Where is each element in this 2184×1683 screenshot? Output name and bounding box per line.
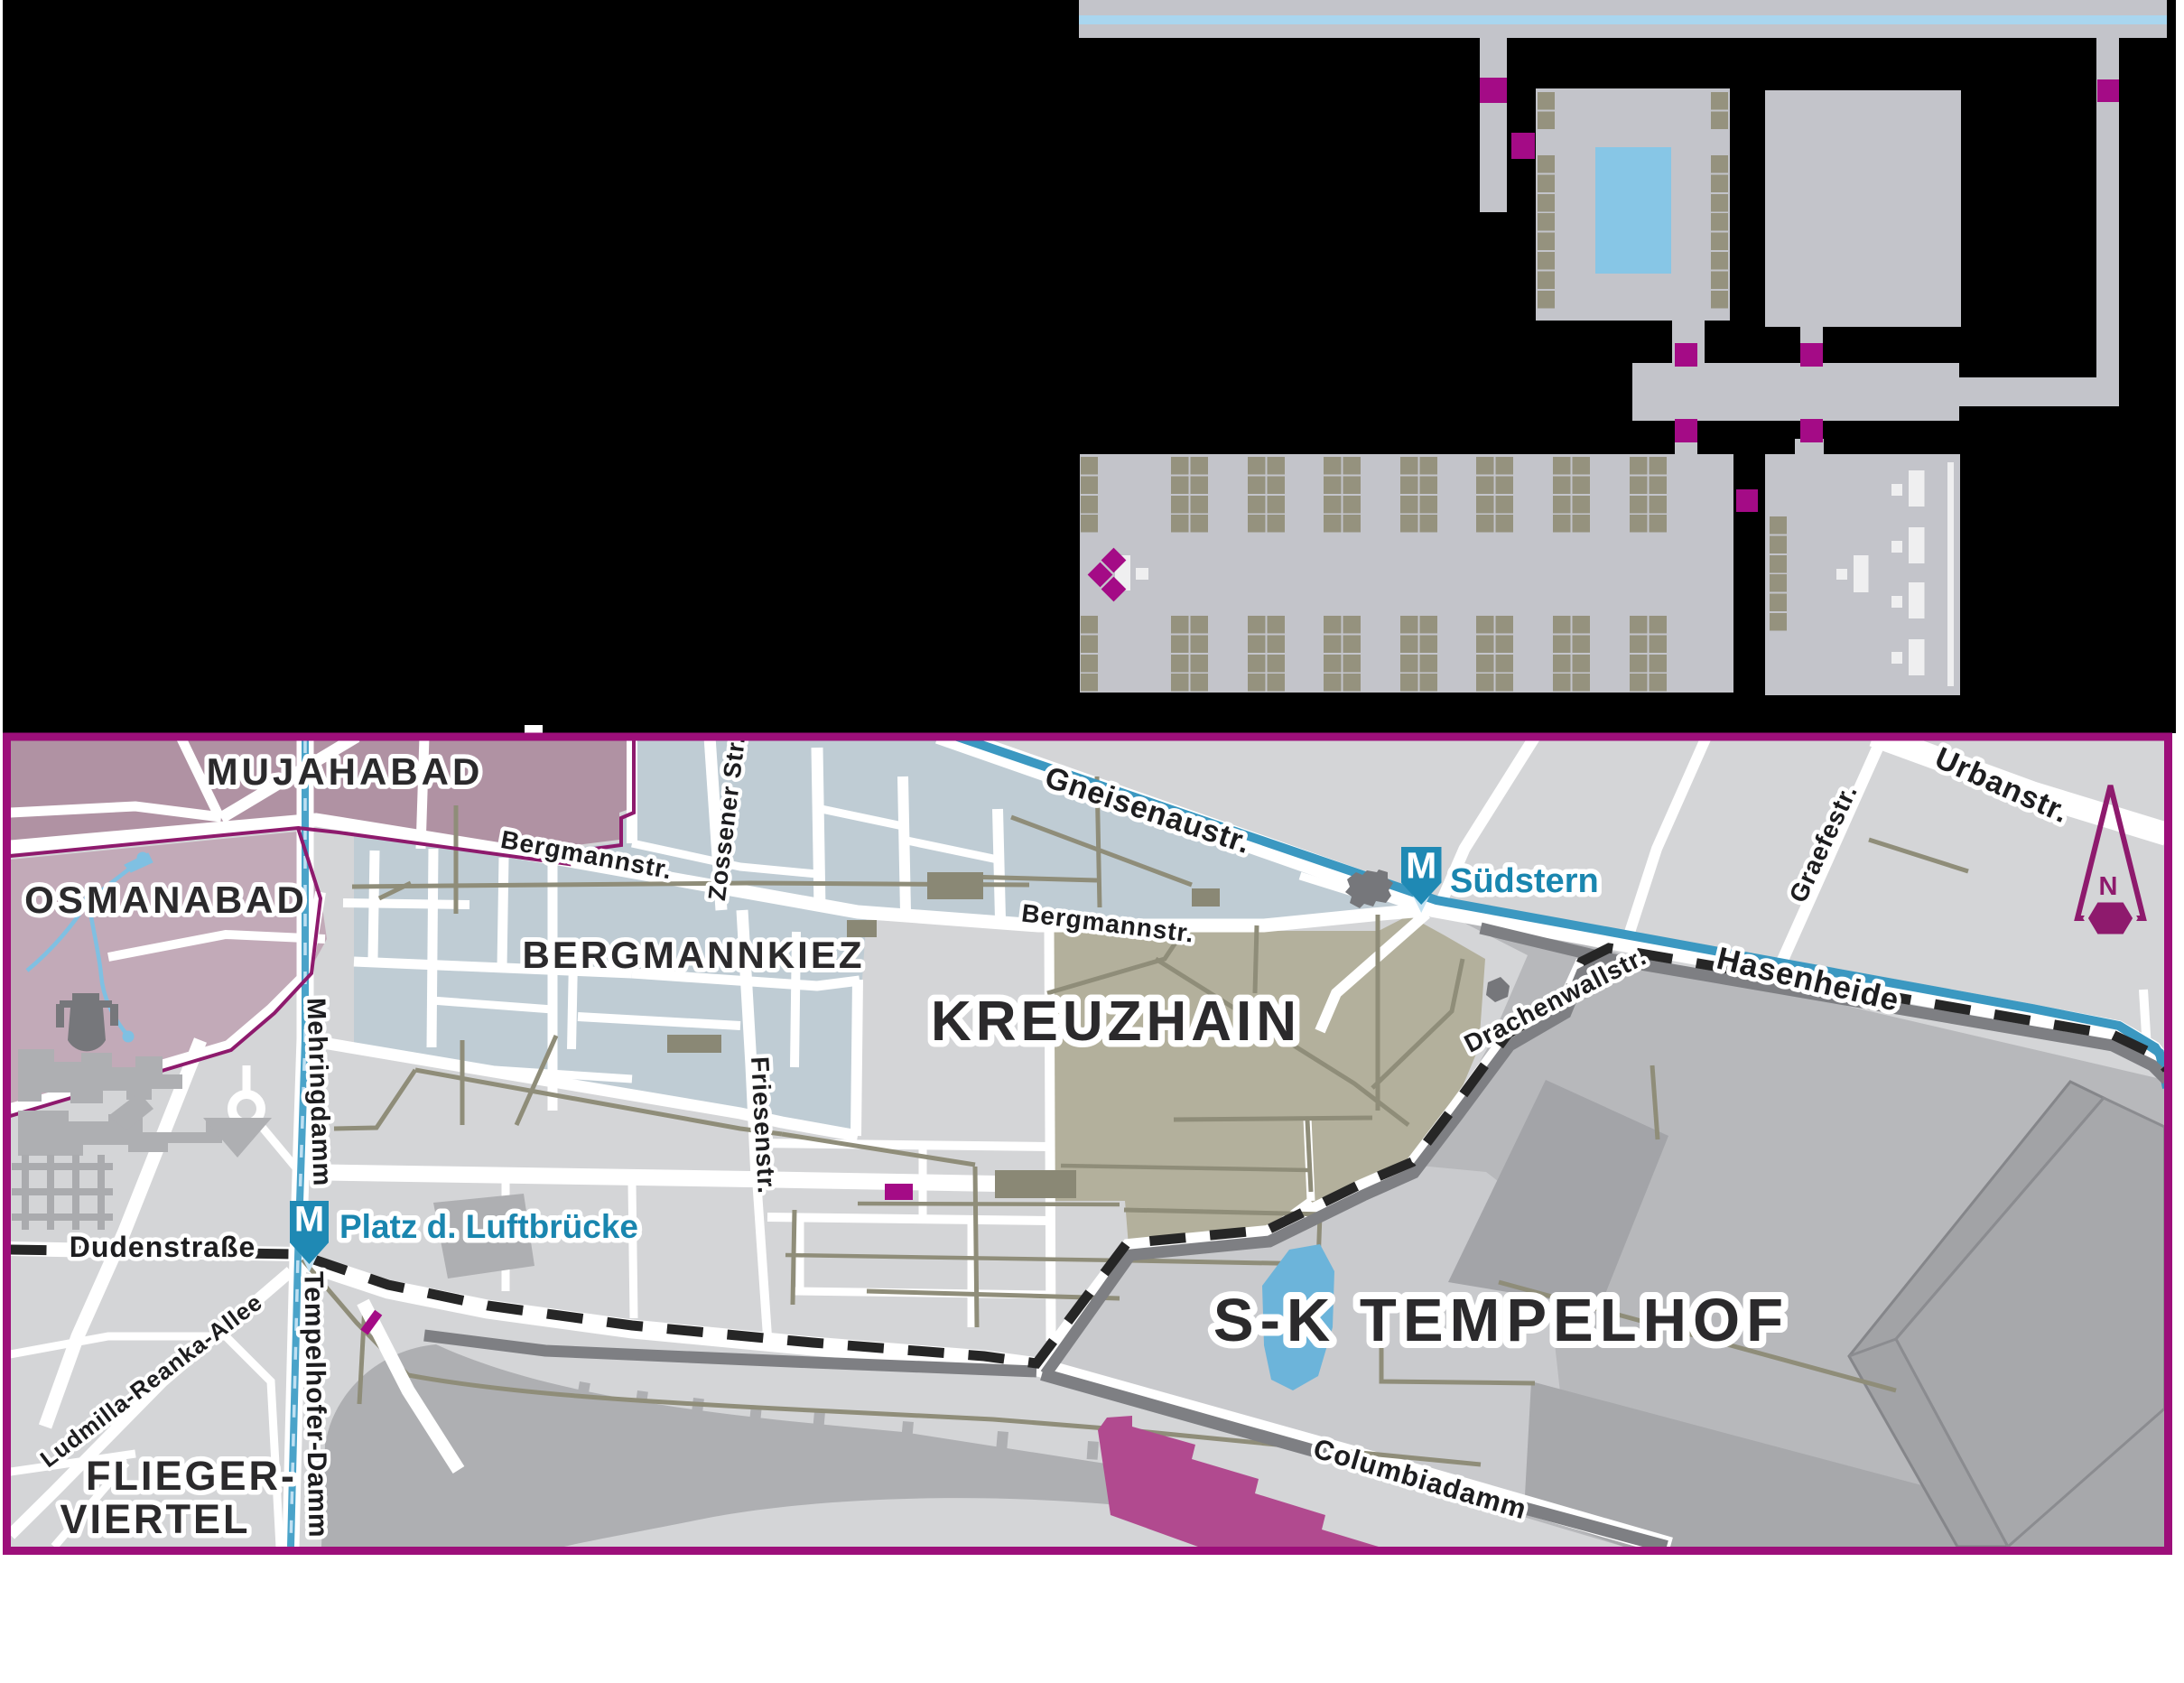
svg-text:Tempelhofer-Damm: Tempelhofer-Damm xyxy=(298,1271,332,1539)
svg-text:N: N xyxy=(2099,872,2118,901)
svg-text:BERGMANNKIEZ: BERGMANNKIEZ xyxy=(523,934,865,976)
svg-text:Südstern: Südstern xyxy=(1450,862,1599,900)
svg-text:Platz d. Luftbrücke: Platz d. Luftbrücke xyxy=(339,1208,638,1245)
svg-text:Dudenstraße: Dudenstraße xyxy=(70,1231,256,1263)
svg-text:MUJAHABAD: MUJAHABAD xyxy=(207,750,484,793)
svg-text:VIERTEL: VIERTEL xyxy=(60,1496,250,1542)
svg-text:M: M xyxy=(1406,845,1436,887)
svg-text:KREUZHAIN: KREUZHAIN xyxy=(931,990,1301,1053)
svg-text:OSMANABAD: OSMANABAD xyxy=(24,879,308,921)
svg-text:S-K TEMPELHOF: S-K TEMPELHOF xyxy=(1213,1287,1789,1354)
svg-text:M: M xyxy=(294,1200,324,1240)
svg-text:FLIEGER-: FLIEGER- xyxy=(86,1453,297,1499)
